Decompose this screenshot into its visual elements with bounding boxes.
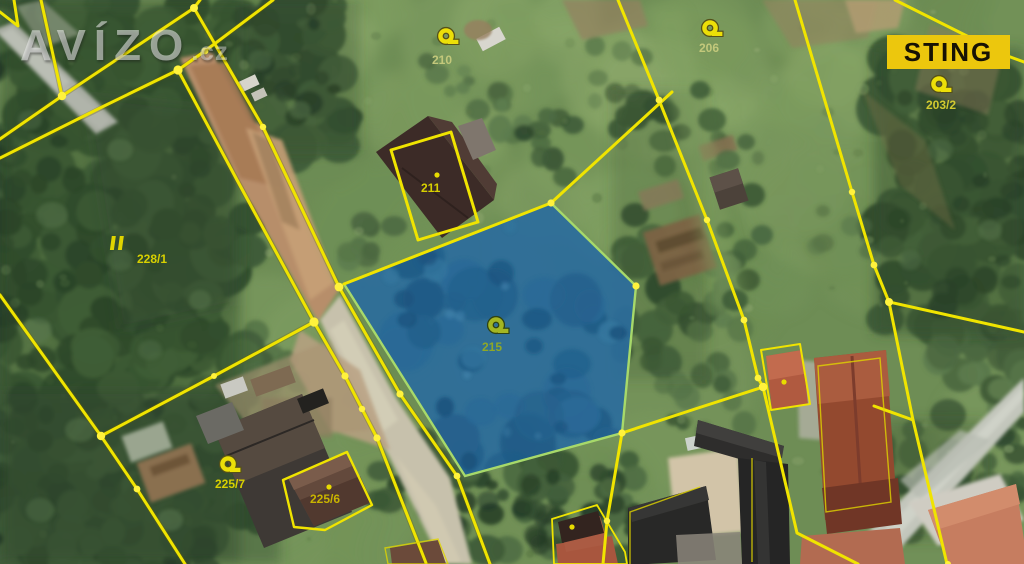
svg-text:211: 211 (421, 181, 441, 195)
svg-text:225/6: 225/6 (310, 492, 340, 506)
svg-text:210: 210 (432, 53, 452, 67)
svg-text:215: 215 (482, 340, 502, 354)
svg-text:206: 206 (699, 41, 719, 55)
svg-text:225/7: 225/7 (215, 477, 245, 491)
svg-text:228/1: 228/1 (137, 252, 167, 266)
svg-text:203/2: 203/2 (926, 98, 956, 112)
